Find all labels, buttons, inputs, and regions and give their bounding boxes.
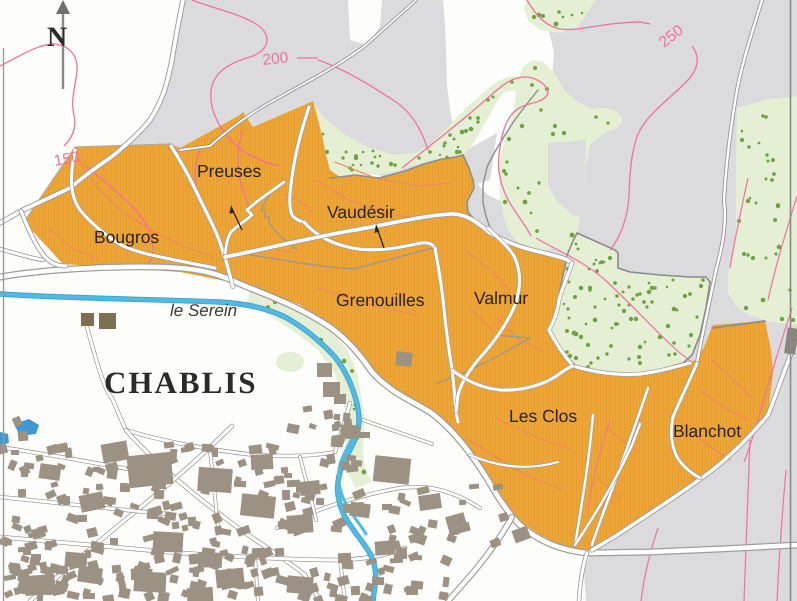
svg-text:CHABLIS: CHABLIS (104, 365, 258, 400)
svg-text:le Serein: le Serein (170, 301, 237, 320)
svg-text:Vaudésir: Vaudésir (327, 202, 395, 222)
svg-text:N: N (47, 22, 67, 53)
svg-text:Bougros: Bougros (94, 227, 159, 247)
svg-text:Grenouilles: Grenouilles (336, 290, 425, 310)
svg-text:Valmur: Valmur (474, 288, 528, 308)
svg-text:Preuses: Preuses (197, 161, 261, 181)
svg-text:Blanchot: Blanchot (673, 421, 741, 441)
svg-text:Les Clos: Les Clos (509, 406, 577, 426)
svg-text:200: 200 (262, 49, 290, 69)
